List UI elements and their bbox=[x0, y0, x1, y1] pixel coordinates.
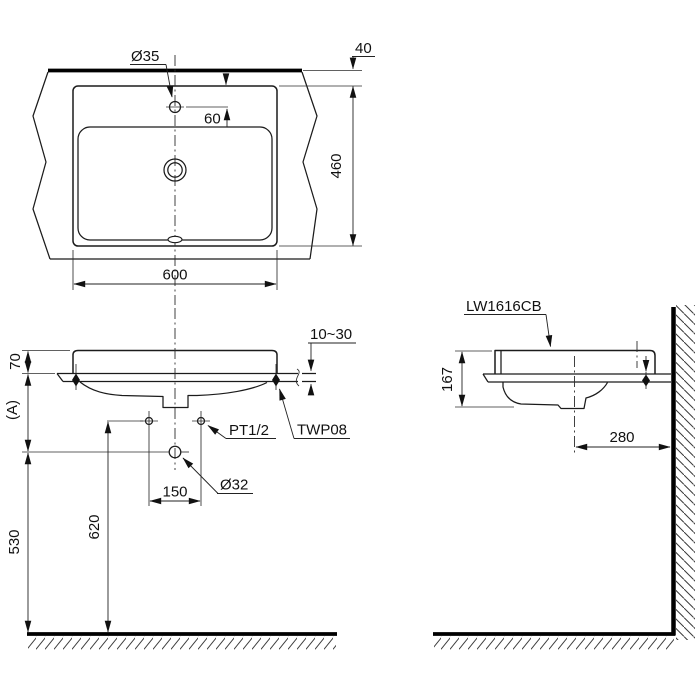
rim-offset-text: 40 bbox=[355, 40, 372, 57]
clip-model-text: TWP08 bbox=[297, 422, 347, 439]
depth-text: 460 bbox=[328, 153, 345, 178]
drain-dia-text: Ø32 bbox=[220, 477, 248, 494]
top-view: Ø35 60 40 460 bbox=[33, 40, 375, 305]
bowl-underside-profile bbox=[80, 382, 267, 408]
dim-counter-thickness: 10~30 bbox=[308, 326, 356, 394]
dim-basin-height: 167 bbox=[439, 351, 514, 407]
label-supply-connection: PT1/2 bbox=[208, 422, 276, 439]
model-text: LW1616CB bbox=[466, 298, 542, 315]
supply-spacing-text: 150 bbox=[162, 484, 187, 501]
faucet-offset-text: 60 bbox=[204, 111, 221, 128]
dim-counter-height-A: (A) bbox=[4, 375, 28, 452]
supply-connection-text: PT1/2 bbox=[229, 422, 269, 439]
floor-right-hatch bbox=[434, 637, 674, 650]
floor-left bbox=[27, 634, 337, 650]
counter-height-label-text: (A) bbox=[4, 400, 21, 420]
side-view: LW1616CB 167 280 bbox=[433, 298, 695, 650]
floor-left-hatch bbox=[28, 637, 336, 650]
dim-depth: 460 bbox=[279, 87, 362, 247]
overflow-slot bbox=[168, 236, 182, 242]
label-faucet-dia: Ø35 bbox=[130, 48, 172, 97]
wall bbox=[674, 305, 696, 640]
bowl-side-profile bbox=[503, 382, 608, 409]
installation-drawing-svg: Ø35 60 40 460 bbox=[0, 0, 700, 700]
label-drain-dia: Ø32 bbox=[183, 458, 253, 494]
supply-height-text: 620 bbox=[86, 514, 103, 539]
mounting-clip-side bbox=[642, 356, 650, 389]
width-text: 600 bbox=[162, 267, 187, 284]
basin-height-text: 167 bbox=[439, 367, 456, 392]
drain-hole bbox=[22, 446, 189, 458]
drain-to-wall-text: 280 bbox=[609, 429, 634, 446]
wall-hatch bbox=[676, 305, 695, 640]
floor-right bbox=[433, 634, 675, 650]
counter-break-squiggle bbox=[296, 369, 299, 386]
dim-rim-above-counter: 70 bbox=[7, 351, 70, 374]
label-clip-model: TWP08 bbox=[280, 389, 351, 439]
counter-break-line-left bbox=[33, 72, 50, 259]
dim-drain-height: 530 bbox=[6, 453, 28, 632]
faucet-dia-text: Ø35 bbox=[131, 48, 159, 65]
counter-thickness-text: 10~30 bbox=[310, 326, 352, 343]
drain-height-text: 530 bbox=[6, 529, 23, 554]
counter-break-line-right bbox=[302, 72, 317, 259]
sink-side-outline bbox=[495, 351, 655, 375]
dim-drain-to-wall: 280 bbox=[576, 429, 670, 447]
dim-rim-offset: 40 bbox=[279, 40, 375, 86]
front-view: 70 (A) 530 620 150 PT1/2 bbox=[4, 308, 356, 650]
label-model: LW1616CB bbox=[464, 298, 551, 347]
installation-drawing-page: Ø35 60 40 460 bbox=[0, 0, 700, 700]
dim-supply-height: 620 bbox=[86, 421, 143, 632]
mounting-clip-right bbox=[272, 364, 280, 390]
rim-above-counter-text: 70 bbox=[7, 353, 24, 370]
dim-faucet-offset: 60 bbox=[186, 74, 228, 128]
supply-hole-right bbox=[192, 411, 210, 431]
